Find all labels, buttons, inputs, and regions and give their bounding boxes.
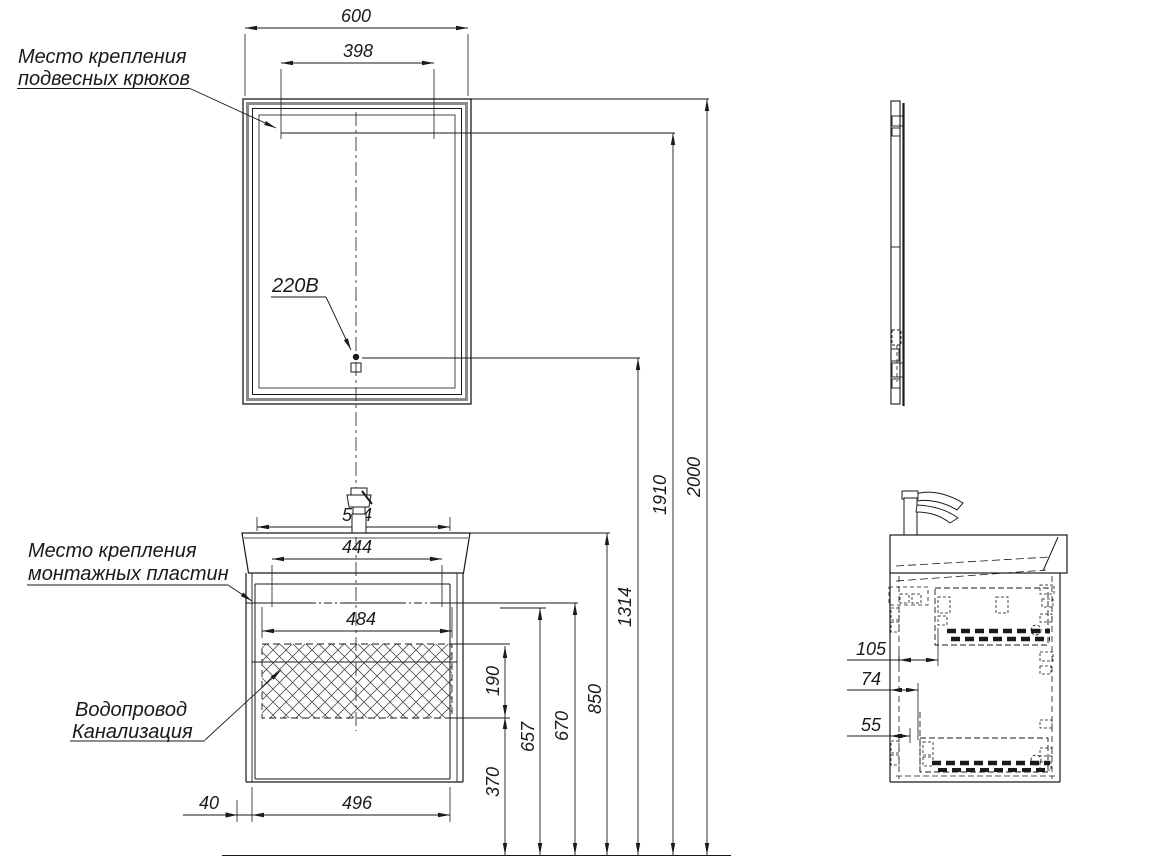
utilities-label-line1: Водопровод [75, 699, 187, 721]
dim-hooks-spacing-value: 398 [343, 41, 373, 61]
hooks-label-line1: Место крепления [18, 46, 187, 68]
technical-drawing-page: 544 [0, 0, 1154, 864]
dim-plates-spacing-value: 444 [342, 537, 372, 557]
dim-hooks-spacing: 398 [281, 41, 434, 139]
hooks-label-line2: подвесных крюков [18, 68, 190, 90]
plates-label-line2: монтажных пластин [28, 563, 229, 585]
dim-cabinet-inner-width-value: 484 [346, 609, 376, 629]
installation-drawing: 544 [0, 0, 1154, 864]
dim-hooks-height-value: 1910 [650, 475, 670, 515]
dim-socket-height-value: 1314 [615, 587, 635, 627]
dim-utility-bottom-value: 370 [483, 767, 503, 797]
dim-bottom-widths: 40 496 [183, 787, 450, 822]
dim-depth-2-value: 74 [861, 669, 881, 689]
dim-plates-spacing: 444 [272, 537, 442, 607]
plates-callout: Место крепления монтажных пластин [27, 540, 252, 601]
dim-mirror-width-value: 600 [341, 6, 371, 26]
utilities-label-line2: Канализация [72, 721, 193, 743]
utilities-zone-hatch [262, 644, 452, 718]
dim-overall-height-value: 2000 [684, 457, 704, 498]
mirror-side-view [891, 101, 904, 406]
dim-cabinet-inner-width: 484 [262, 607, 452, 638]
power-callout: 220В [271, 275, 361, 372]
faucet-side [902, 491, 963, 535]
dim-drawer-width-value: 496 [342, 793, 373, 813]
cabinet-side-view [889, 491, 1067, 782]
dim-sink-top-value: 850 [585, 684, 605, 714]
side-depth-dimensions: 105 74 55 [847, 628, 938, 743]
dim-plates-height-2-value: 670 [552, 711, 572, 741]
utilities-callout: Водопровод Канализация [70, 670, 281, 743]
dim-plates-height-1-value: 657 [518, 721, 538, 752]
height-dimensions: 190 370 657 670 850 1314 1910 2000 [483, 99, 707, 855]
hooks-callout: Место крепления подвесных крюков [17, 46, 276, 128]
dim-depth-1-value: 105 [856, 639, 887, 659]
socket-point [353, 354, 359, 360]
dim-left-offset-value: 40 [199, 793, 219, 813]
plates-label-line1: Место крепления [28, 540, 197, 562]
dim-depth-3-value: 55 [861, 715, 882, 735]
dim-utility-zone-value: 190 [483, 666, 503, 696]
power-label: 220В [271, 275, 319, 297]
